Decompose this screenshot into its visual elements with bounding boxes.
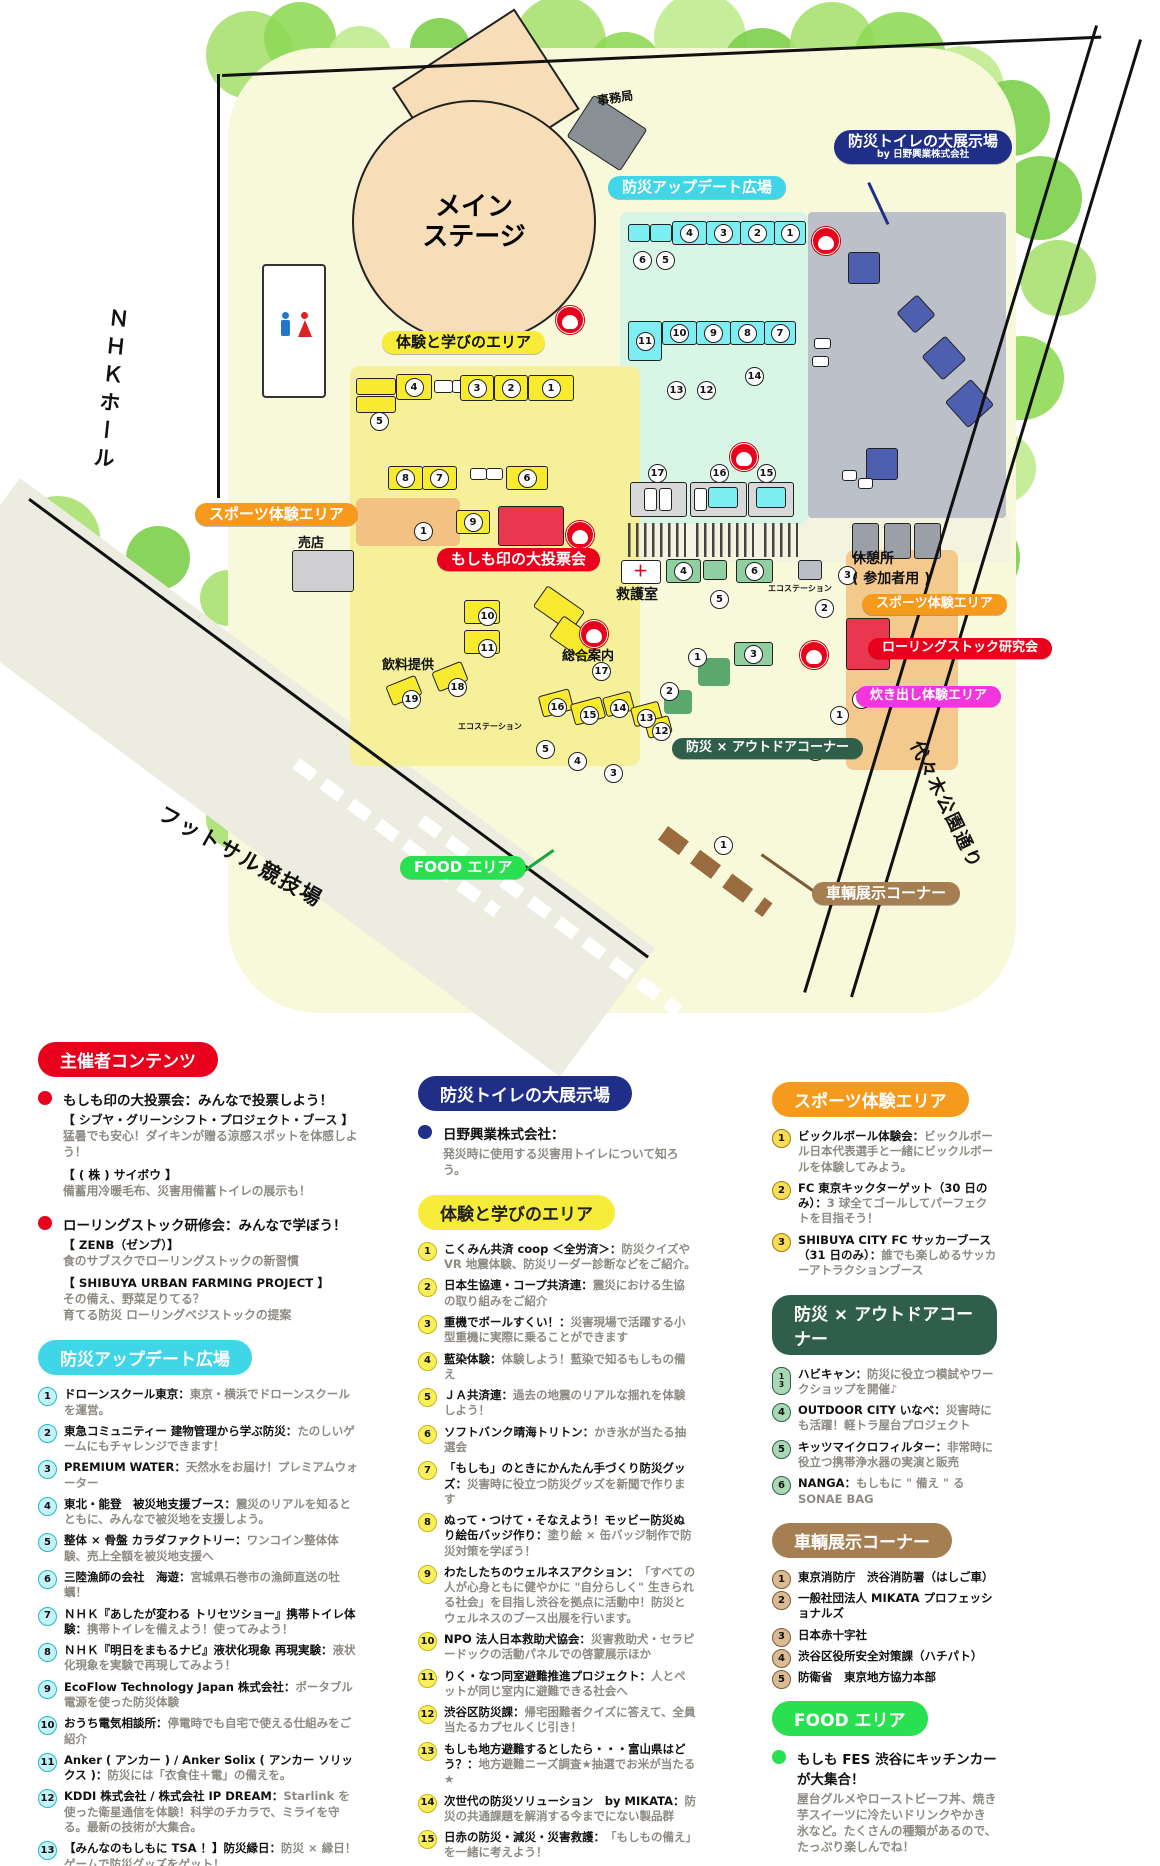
booth: 6 (736, 559, 773, 583)
entry-bracket: 【 ( 株 ) サイボウ 】 (63, 1168, 360, 1184)
legend-item: 12KDDI 株式会社 / 株式会社 IP DREAM：Starlink を使っ… (38, 1789, 360, 1835)
item-number-badge: 9 (38, 1680, 57, 1699)
map: メイン ステージ43211110987432187694636513121417… (0, 0, 1160, 1030)
booth (842, 470, 857, 481)
booth (470, 468, 487, 480)
entry-desc: 屋台グルメやローストビーフ丼、焼き芋スイーツに冷たいドリンクやかき氷など。たくさ… (797, 1792, 997, 1856)
legend-entry: ローリングストック研修会：みんなで学ぼう！【 ZENB（ゼンブ）】食のサブスクで… (38, 1214, 360, 1325)
item-name: キッツマイクロフィルター： (798, 1440, 947, 1454)
item-number-badge: 5 (772, 1670, 791, 1689)
area-label-text: 防災アップデート広場 (622, 179, 772, 196)
item-name: EcoFlow Technology Japan 株式会社： (64, 1680, 295, 1694)
legend-item: 12渋谷区防災課：帰宅困難者クイズに答えて、全員当たるカプセルくじ引き！ (418, 1705, 696, 1736)
bullet-dot (772, 1750, 786, 1764)
item-name: 東京消防庁 渋谷消防署（はしご車） (798, 1570, 994, 1584)
item-name: ビックルボール体験会： (798, 1129, 924, 1143)
booth: 3 (460, 375, 494, 401)
item-name: 藍染体験： (444, 1352, 502, 1366)
map-marker: 1 (830, 706, 849, 725)
map-marker: 3 (604, 764, 623, 783)
item-number-badge: 1 (772, 1129, 791, 1148)
map-marker: 19 (402, 690, 421, 709)
map-marker: 15 (580, 706, 599, 725)
map-marker: 15 (757, 464, 776, 483)
booth (866, 448, 898, 480)
map-text: 救護室 (616, 584, 658, 604)
map-marker: 10 (478, 607, 497, 626)
bullet-dot (38, 1216, 52, 1230)
map-marker: 14 (610, 699, 629, 718)
item-name: ＮＨＫ『明日をまもるナビ』液状化現象 再現実験： (64, 1643, 333, 1657)
booth-number: 7 (430, 469, 449, 488)
bullet-dot (418, 1125, 432, 1139)
item-name: ソフトバンク晴海トリトン： (444, 1425, 594, 1439)
map-marker: 12 (697, 381, 716, 400)
item-number-badge: 8 (38, 1643, 57, 1662)
map-marker: 4 (568, 752, 587, 771)
item-number-badge: 1 (38, 1387, 57, 1406)
entry-heading: もしも印の大投票会：みんなで投票しよう！ (38, 1089, 360, 1109)
section-header: FOOD エリア (772, 1701, 928, 1736)
item-number-badge: 8 (418, 1513, 437, 1532)
item-desc: 地方避難ニーズ調査★抽選でお米が当たる★ (444, 1757, 695, 1786)
entry-bracket: 【 シブヤ・グリーンシフト・プロジェクト・ブース 】 (63, 1113, 360, 1129)
legend-entry: もしも FES 渋谷にキッチンカーが大集合！屋台グルメやローストビーフ丼、焼き芋… (772, 1748, 997, 1856)
booth-number: 2 (502, 379, 521, 398)
legend-item: 9EcoFlow Technology Japan 株式会社：ポータブル電源を使… (38, 1680, 360, 1711)
legend-item: 15日赤の防災・減災・災害救護：「もしもの備え」を一緒に考えよう！ (418, 1830, 696, 1861)
entry-desc: 猛暑でも安心！ダイキンが贈る涼感スポットを体感しよう！ (63, 1129, 360, 1161)
map-text: 総合案内 (562, 645, 614, 664)
section-update: 防災アップデート広場1ドローンスクール東京：東京・横浜でドローンスクールを運営。… (38, 1340, 360, 1866)
entry-desc: 食のサブスクでローリングストックの新習慣 (63, 1254, 360, 1270)
item-name: 防衛省 東京地方協力本部 (798, 1670, 936, 1684)
legend-item: 13もしも地方避難するとしたら・・・富山県はどう？：地方避難ニーズ調査★抽選でお… (418, 1742, 696, 1788)
item-number-badge: 13 (418, 1742, 437, 1761)
section-header: 体験と学びのエリア (418, 1195, 615, 1230)
item-number-badge: 3 (38, 1460, 57, 1479)
item-name: OUTDOOR CITY いなべ： (798, 1403, 946, 1417)
map-marker: 18 (448, 678, 467, 697)
item-number-badge: 1 3 (772, 1367, 791, 1395)
legend-item: 6ソフトバンク晴海トリトン：かき氷が当たる抽選会 (418, 1425, 696, 1456)
legend-item: 10NPO 法人日本救助犬協会：災害救助犬・セラピードックの活動パネルでの啓蒙展… (418, 1632, 696, 1663)
section-outdoor: 防災 × アウトドアコーナー1 3ハビキャン：防災に役立つ模試やワークショップを… (772, 1295, 997, 1507)
legend-item: 4渋谷区役所安全対策課（ハチパト） (772, 1649, 997, 1664)
booth: 9 (456, 510, 490, 534)
item-number-badge: 15 (418, 1830, 437, 1849)
item-name: 東急コミュニティー 建物管理から学ぶ防災： (64, 1424, 297, 1438)
legend-item: 4東北・能登 被災地支援ブース：震災のリアルを知るとともに、みんなで被災地を支援… (38, 1497, 360, 1528)
booth: 4 (672, 221, 707, 245)
staff-icon (730, 443, 758, 471)
booth (708, 487, 738, 508)
item-number-badge: 3 (772, 1628, 791, 1647)
item-number-badge: 5 (38, 1533, 57, 1552)
map-text: エコステーション (458, 721, 522, 732)
mens-room-icon (279, 312, 291, 342)
item-number-badge: 9 (418, 1565, 437, 1584)
map-marker: 17 (648, 464, 667, 483)
booth (650, 224, 672, 242)
map-marker: 5 (536, 740, 555, 759)
entry-desc: 備蓄用冷暖毛布、災害用備蓄トイレの展示も！ (63, 1184, 360, 1200)
legend-item: 2日本生協連・コープ共済連：震災における生協の取り組みをご紹介 (418, 1278, 696, 1309)
entry-heading-text: 日野興業株式会社： (443, 1123, 696, 1143)
map-text: ＋ (633, 560, 648, 581)
booth: 4 (666, 559, 701, 583)
item-number-badge: 4 (38, 1497, 57, 1516)
legend-entry: 日野興業株式会社：発災時に使用する災害用トイレについて知ろう。 (418, 1123, 696, 1179)
booth (848, 252, 880, 284)
item-number-badge: 7 (418, 1461, 437, 1480)
area-label: 炊き出し体験エリア (856, 686, 1001, 707)
booth (756, 487, 786, 508)
booth (486, 468, 503, 480)
entry-heading: もしも FES 渋谷にキッチンカーが大集合！ (772, 1748, 997, 1788)
staff-icon (566, 521, 594, 549)
map-marker: 1 (688, 648, 707, 667)
area-label: 体験と学びのエリア (382, 331, 545, 354)
item-desc: 災害時に役立つ防災グッズを新聞で作ります (444, 1477, 686, 1506)
area-label-text: もしも印の大投票会 (451, 551, 586, 568)
section-header: 防災 × アウトドアコーナー (772, 1295, 997, 1355)
section-sports: スポーツ体験エリア1ビックルボール体験会：ビックルボール日本代表選手と一緒にビッ… (772, 1082, 997, 1279)
entry-heading-text: もしも印の大投票会：みんなで投票しよう！ (63, 1089, 360, 1109)
map-marker: 6 (633, 251, 652, 270)
item-name: ドローンスクール東京： (64, 1387, 190, 1401)
item-name: NPO 法人日本救助犬協会： (444, 1632, 591, 1646)
item-name: 日本赤十字社 (798, 1628, 867, 1642)
legend-item: 5キッツマイクロフィルター：非常時に役立つ携帯浄水器の実演と販売 (772, 1440, 997, 1471)
item-number-badge: 3 (772, 1233, 791, 1252)
legend-column: スポーツ体験エリア1ビックルボール体験会：ビックルボール日本代表選手と一緒にビッ… (772, 1082, 997, 1866)
legend-item: 3SHIBUYA CITY FC サッカーブース（31 日のみ）：誰でも楽しめる… (772, 1233, 997, 1279)
legend-item: 8ＮＨＫ『明日をまもるナビ』液状化現象 再現実験：液状化現象を実験で再現してみよ… (38, 1643, 360, 1674)
booth: 8 (388, 466, 423, 490)
legend-item: 5整体 × 骨盤 カラダファクトリー：ワンコイン整体体験、売上全額を被災地支援へ (38, 1533, 360, 1564)
map-marker: 5 (370, 412, 389, 431)
entry-heading-text: ローリングストック研修会：みんなで学ぼう！ (63, 1214, 360, 1234)
item-number-badge: 2 (418, 1278, 437, 1297)
booth (434, 380, 453, 393)
main-stage-circle: メイン ステージ (352, 100, 596, 344)
map-text: 売店 (298, 532, 324, 551)
item-number-badge: 4 (418, 1352, 437, 1371)
area-label: FOOD エリア (400, 856, 526, 879)
item-number-badge: 5 (418, 1388, 437, 1407)
booth (498, 506, 564, 546)
staff-icon (556, 306, 584, 334)
area-label: 車輌展示コーナー (812, 882, 960, 905)
booth (694, 488, 707, 511)
booth (798, 560, 822, 580)
item-name: おうち電気相談所： (64, 1716, 168, 1730)
item-number-badge: 12 (418, 1705, 437, 1724)
booth (703, 560, 727, 580)
item-name: こくみん共済 coop ＜全労済＞： (444, 1242, 621, 1256)
area-label: 防災アップデート広場 (608, 176, 786, 199)
map-zone (356, 498, 460, 546)
item-name: PREMIUM WATER： (64, 1460, 186, 1474)
section-food: FOOD エリアもしも FES 渋谷にキッチンカーが大集合！屋台グルメやロースト… (772, 1701, 997, 1856)
booth: 11 (628, 321, 662, 361)
legend-column: 主催者コンテンツもしも印の大投票会：みんなで投票しよう！【 シブヤ・グリーンシフ… (38, 1042, 360, 1866)
area-label-text: 体験と学びのエリア (396, 334, 531, 351)
booth-number: 4 (674, 562, 693, 581)
booth-number: 8 (738, 324, 757, 343)
item-number-badge: 11 (418, 1669, 437, 1688)
item-name: わたしたちのウェルネスアクション： (444, 1565, 639, 1579)
legend-column: 防災トイレの大展示場日野興業株式会社：発災時に使用する災害用トイレについて知ろう… (418, 1076, 696, 1866)
map-marker: 14 (745, 367, 764, 386)
stripe-row (764, 523, 798, 557)
item-name: 一般社団法人 MIKATA プロフェッショナルズ (798, 1591, 993, 1620)
map-marker: 5 (710, 590, 729, 609)
area-label-subtext: by 日野興業株式会社 (848, 150, 998, 161)
womens-room-icon (298, 312, 310, 342)
booth: 7 (422, 466, 457, 490)
entry-heading: 日野興業株式会社： (418, 1123, 696, 1143)
area-label-text: FOOD エリア (414, 859, 512, 876)
area-label-text: ローリングストック研究会 (882, 641, 1038, 656)
legend-item: 2東急コミュニティー 建物管理から学ぶ防災：たのしいゲームにもチャレンジできます… (38, 1424, 360, 1455)
legend-item: 9わたしたちのウェルネスアクション：「すべての人が心身ともに健やかに "自分らし… (418, 1565, 696, 1626)
map-marker: 12 (652, 722, 671, 741)
legend-item: 7ＮＨＫ『あしたが変わる トリセツショー』携帯トイレ体験：携帯トイレを備えよう！… (38, 1607, 360, 1638)
legend-item: 1こくみん共済 coop ＜全労済＞：防災クイズや VR 地震体験、防災リーダー… (418, 1242, 696, 1273)
legend-item: 11りく・なつ同室避難推進プロジェクト：人とペットが同じ室内に避難できる社会へ (418, 1669, 696, 1700)
booth (356, 378, 396, 395)
section-header: 主催者コンテンツ (38, 1042, 218, 1077)
item-name: 三陸漁師の会社 海遊： (64, 1570, 191, 1584)
map-marker: 2 (660, 682, 679, 701)
item-name: 日本生協連・コープ共済連： (444, 1278, 593, 1292)
item-number-badge: 3 (418, 1315, 437, 1334)
booth (628, 224, 650, 242)
area-label: 防災トイレの大展示場by 日野興業株式会社 (834, 130, 1012, 164)
legend-item: 5防衛省 東京地方協力本部 (772, 1670, 997, 1685)
booth: 8 (730, 321, 765, 345)
item-name: ハビキャン： (798, 1367, 867, 1381)
item-name: 整体 × 骨盤 カラダファクトリー： (64, 1533, 247, 1547)
bullet-dot (38, 1091, 52, 1105)
womens-room-icon-head (301, 312, 308, 319)
mens-room-icon-body (281, 320, 290, 336)
map-marker: 5 (656, 251, 675, 270)
legend-item: 4藍染体験：体験しよう！藍染で知るもしもの備え (418, 1352, 696, 1383)
legend-item: 14次世代の防災ソリューション by MIKATA：防災の共通課題を解消する今ま… (418, 1794, 696, 1825)
legend-item: 1ビックルボール体験会：ビックルボール日本代表選手と一緒にビックルボールを体験し… (772, 1129, 997, 1175)
legend-item: 3PREMIUM WATER：天然水をお届け！プレミアムウォーター (38, 1460, 360, 1491)
booth-number: 9 (704, 324, 723, 343)
area-label: ローリングストック研究会 (868, 638, 1052, 659)
legend-item: 3重機でボールすくい！：災害現場で活躍する小型重機に実際に乗ることができます (418, 1315, 696, 1346)
entry-bracket: 【 SHIBUYA URBAN FARMING PROJECT 】 (63, 1276, 360, 1292)
item-name: NANGA： (798, 1476, 856, 1490)
item-number-badge: 6 (38, 1570, 57, 1589)
item-number-badge: 13 (38, 1841, 57, 1860)
section-header: 防災アップデート広場 (38, 1340, 252, 1375)
item-name: 東北・能登 被災地支援ブース： (64, 1497, 236, 1511)
legend-item: 10おうち電気相談所：停電時でも自宅で使える仕組みをご紹介 (38, 1716, 360, 1747)
womens-room-icon-body (298, 320, 312, 337)
booth-number: 2 (748, 224, 767, 243)
booth-number: 3 (468, 379, 487, 398)
entry-bracket: 【 ZENB（ゼンブ）】 (63, 1238, 360, 1254)
map-marker: 2 (815, 599, 834, 618)
booth-number: 11 (636, 332, 655, 351)
map-marker: 17 (592, 662, 611, 681)
item-number-badge: 2 (772, 1181, 791, 1200)
item-number-badge: 11 (38, 1753, 57, 1772)
section-vehicle: 車輌展示コーナー1東京消防庁 渋谷消防署（はしご車）2一般社団法人 MIKATA… (772, 1523, 997, 1686)
item-desc: 携帯トイレを備えよう！使ってみよう！ (87, 1622, 293, 1636)
item-number-badge: 10 (38, 1716, 57, 1735)
mens-room-icon-head (282, 312, 289, 319)
booth-number: 4 (405, 378, 424, 397)
restroom-icons (264, 312, 324, 342)
item-name: 渋谷区防災課： (444, 1705, 525, 1719)
section-header: スポーツ体験エリア (772, 1082, 969, 1117)
area-label: もしも印の大投票会 (437, 548, 600, 571)
item-number-badge: 1 (772, 1570, 791, 1589)
booth-number: 6 (518, 469, 537, 488)
map-text: 飲料提供 (382, 654, 434, 673)
booth-number: 1 (781, 224, 800, 243)
booth (659, 488, 672, 511)
legend-item: 3日本赤十字社 (772, 1628, 997, 1643)
booth: 10 (662, 321, 697, 345)
legend-item: 2一般社団法人 MIKATA プロフェッショナルズ (772, 1591, 997, 1622)
item-number-badge: 6 (772, 1476, 791, 1495)
item-name: 重機でボールすくい！： (444, 1315, 571, 1329)
map-marker: 16 (710, 464, 729, 483)
booth: 4 (396, 374, 432, 400)
item-name: 日赤の防災・減災・災害救護： (444, 1830, 605, 1844)
item-number-badge: 14 (418, 1794, 437, 1813)
item-number-badge: 4 (772, 1403, 791, 1422)
item-desc: 防災には「衣食住＋電」の備えを。 (107, 1768, 291, 1782)
item-number-badge: 5 (772, 1440, 791, 1459)
booth (812, 356, 829, 367)
entry-desc: その備え、野菜足りてる？ 育てる防災 ローリングベジストックの提案 (63, 1292, 360, 1324)
map-zone (808, 212, 1006, 518)
stripe-row (628, 523, 686, 557)
legend-item: 6三陸漁師の会社 海遊：宮城県石巻市の漁師直送の牡蠣！ (38, 1570, 360, 1601)
section-header: 車輌展示コーナー (772, 1523, 952, 1558)
map-marker: 16 (548, 698, 567, 717)
booth-number: 9 (464, 513, 483, 532)
item-number-badge: 12 (38, 1789, 57, 1808)
booth-number: 3 (714, 224, 733, 243)
area-label-text: 車輌展示コーナー (826, 885, 946, 902)
staff-icon (580, 620, 608, 648)
legend-item: 13【みんなのもしもに TSA ！】防災縁日：防災 × 縁日！ゲームで防災グッズ… (38, 1841, 360, 1866)
booth (644, 488, 657, 511)
booth: 3 (734, 642, 773, 666)
item-number-badge: 6 (418, 1425, 437, 1444)
map-text: 休憩所 ( 参加者用 ) (852, 548, 931, 588)
legend-item: 1東京消防庁 渋谷消防署（はしご車） (772, 1570, 997, 1585)
entry-heading-text: もしも FES 渋谷にキッチンカーが大集合！ (797, 1748, 997, 1788)
legend-entry: もしも印の大投票会：みんなで投票しよう！【 シブヤ・グリーンシフト・プロジェクト… (38, 1089, 360, 1200)
item-number-badge: 10 (418, 1632, 437, 1651)
area-label-text: スポーツ体験エリア (209, 506, 344, 523)
area-label-text: 防災トイレの大展示場 (848, 133, 998, 150)
item-name: りく・なつ同室避難推進プロジェクト： (444, 1669, 651, 1683)
booth: 1 (774, 221, 806, 245)
entry-desc: 発災時に使用する災害用トイレについて知ろう。 (443, 1147, 696, 1179)
item-number-badge: 1 (418, 1242, 437, 1261)
legend-item: 8ぬって・つけて・そなえよう！モッビー防災ぬり絵缶バッジ作り：塗り絵 × 缶バッ… (418, 1513, 696, 1559)
map-marker: 1 (714, 836, 733, 855)
legend-item: 1ドローンスクール東京：東京・横浜でドローンスクールを運営。 (38, 1387, 360, 1418)
map-marker: 11 (478, 639, 497, 658)
event-map-page: メイン ステージ43211110987432187694636513121417… (0, 0, 1160, 1866)
booth: 1 (528, 375, 574, 401)
legend-item: 11Anker ( アンカー ) / Anker Solix ( アンカー ソリ… (38, 1753, 360, 1784)
booth: 2 (494, 375, 528, 401)
area-label-text: スポーツ体験エリア (876, 597, 993, 612)
area-label-text: 炊き出し体験エリア (870, 689, 987, 704)
item-name: ＪＡ共済連： (444, 1388, 513, 1402)
booth: 2 (740, 221, 775, 245)
booth: 7 (764, 321, 796, 345)
booth-number: 6 (745, 562, 764, 581)
item-name: KDDI 株式会社 / 株式会社 IP DREAM： (64, 1789, 283, 1803)
section-toilet: 防災トイレの大展示場日野興業株式会社：発災時に使用する災害用トイレについて知ろう… (418, 1076, 696, 1179)
item-number-badge: 4 (772, 1649, 791, 1668)
section-taiken: 体験と学びのエリア1こくみん共済 coop ＜全労済＞：防災クイズや VR 地震… (418, 1195, 696, 1866)
legend-item: 2FC 東京キックターゲット（30 日のみ）：3 球全てゴールしてパーフェクトを… (772, 1181, 997, 1227)
item-name: 渋谷区役所安全対策課（ハチパト） (798, 1649, 982, 1663)
legend-item: 5ＪＡ共済連：過去の地震のリアルな揺れを体験しよう！ (418, 1388, 696, 1419)
boundary-line (217, 74, 220, 498)
item-name: 【みんなのもしもに TSA ！】防災縁日： (64, 1841, 281, 1855)
booth: 9 (696, 321, 731, 345)
section-header: 防災トイレの大展示場 (418, 1076, 632, 1111)
staff-icon (800, 641, 828, 669)
legend-item: 7「もしも」のときにかんたん手づくり防災グッズ：災害時に役立つ防災グッズを新聞で… (418, 1461, 696, 1507)
map-text: ＮＨＫホール (86, 306, 133, 476)
legend-item: 4OUTDOOR CITY いなべ：災害時にも活躍！軽トラ屋台プロジェクト (772, 1403, 997, 1434)
item-number-badge: 7 (38, 1607, 57, 1626)
legend-item: 1 3ハビキャン：防災に役立つ模試やワークショップを開催♪ (772, 1367, 997, 1398)
booth-number: 4 (680, 224, 699, 243)
area-label-text: 防災 × アウトドアコーナー (686, 741, 849, 756)
area-label: スポーツ体験エリア (195, 503, 358, 526)
map-text: エコステーション (768, 583, 832, 594)
item-number-badge: 2 (772, 1591, 791, 1610)
item-number-badge: 2 (38, 1424, 57, 1443)
area-label: スポーツ体験エリア (862, 594, 1007, 615)
booth (292, 550, 354, 592)
booth-number: 10 (670, 324, 689, 343)
item-desc: 3 球全てゴールしてパーフェクトを目指そう！ (798, 1196, 987, 1225)
map-marker: 13 (667, 381, 686, 400)
stripe-row (696, 523, 754, 557)
staff-icon (812, 227, 840, 255)
booth: 3 (706, 221, 741, 245)
area-label: 防災 × アウトドアコーナー (672, 738, 863, 759)
legend-item: 6NANGA：もしもに " 備え " る SONAE BAG (772, 1476, 997, 1507)
booth-number: 3 (744, 645, 763, 664)
booth (814, 338, 831, 349)
booth (356, 396, 396, 413)
entry-heading: ローリングストック研修会：みんなで学ぼう！ (38, 1214, 360, 1234)
restroom-box (262, 264, 326, 398)
